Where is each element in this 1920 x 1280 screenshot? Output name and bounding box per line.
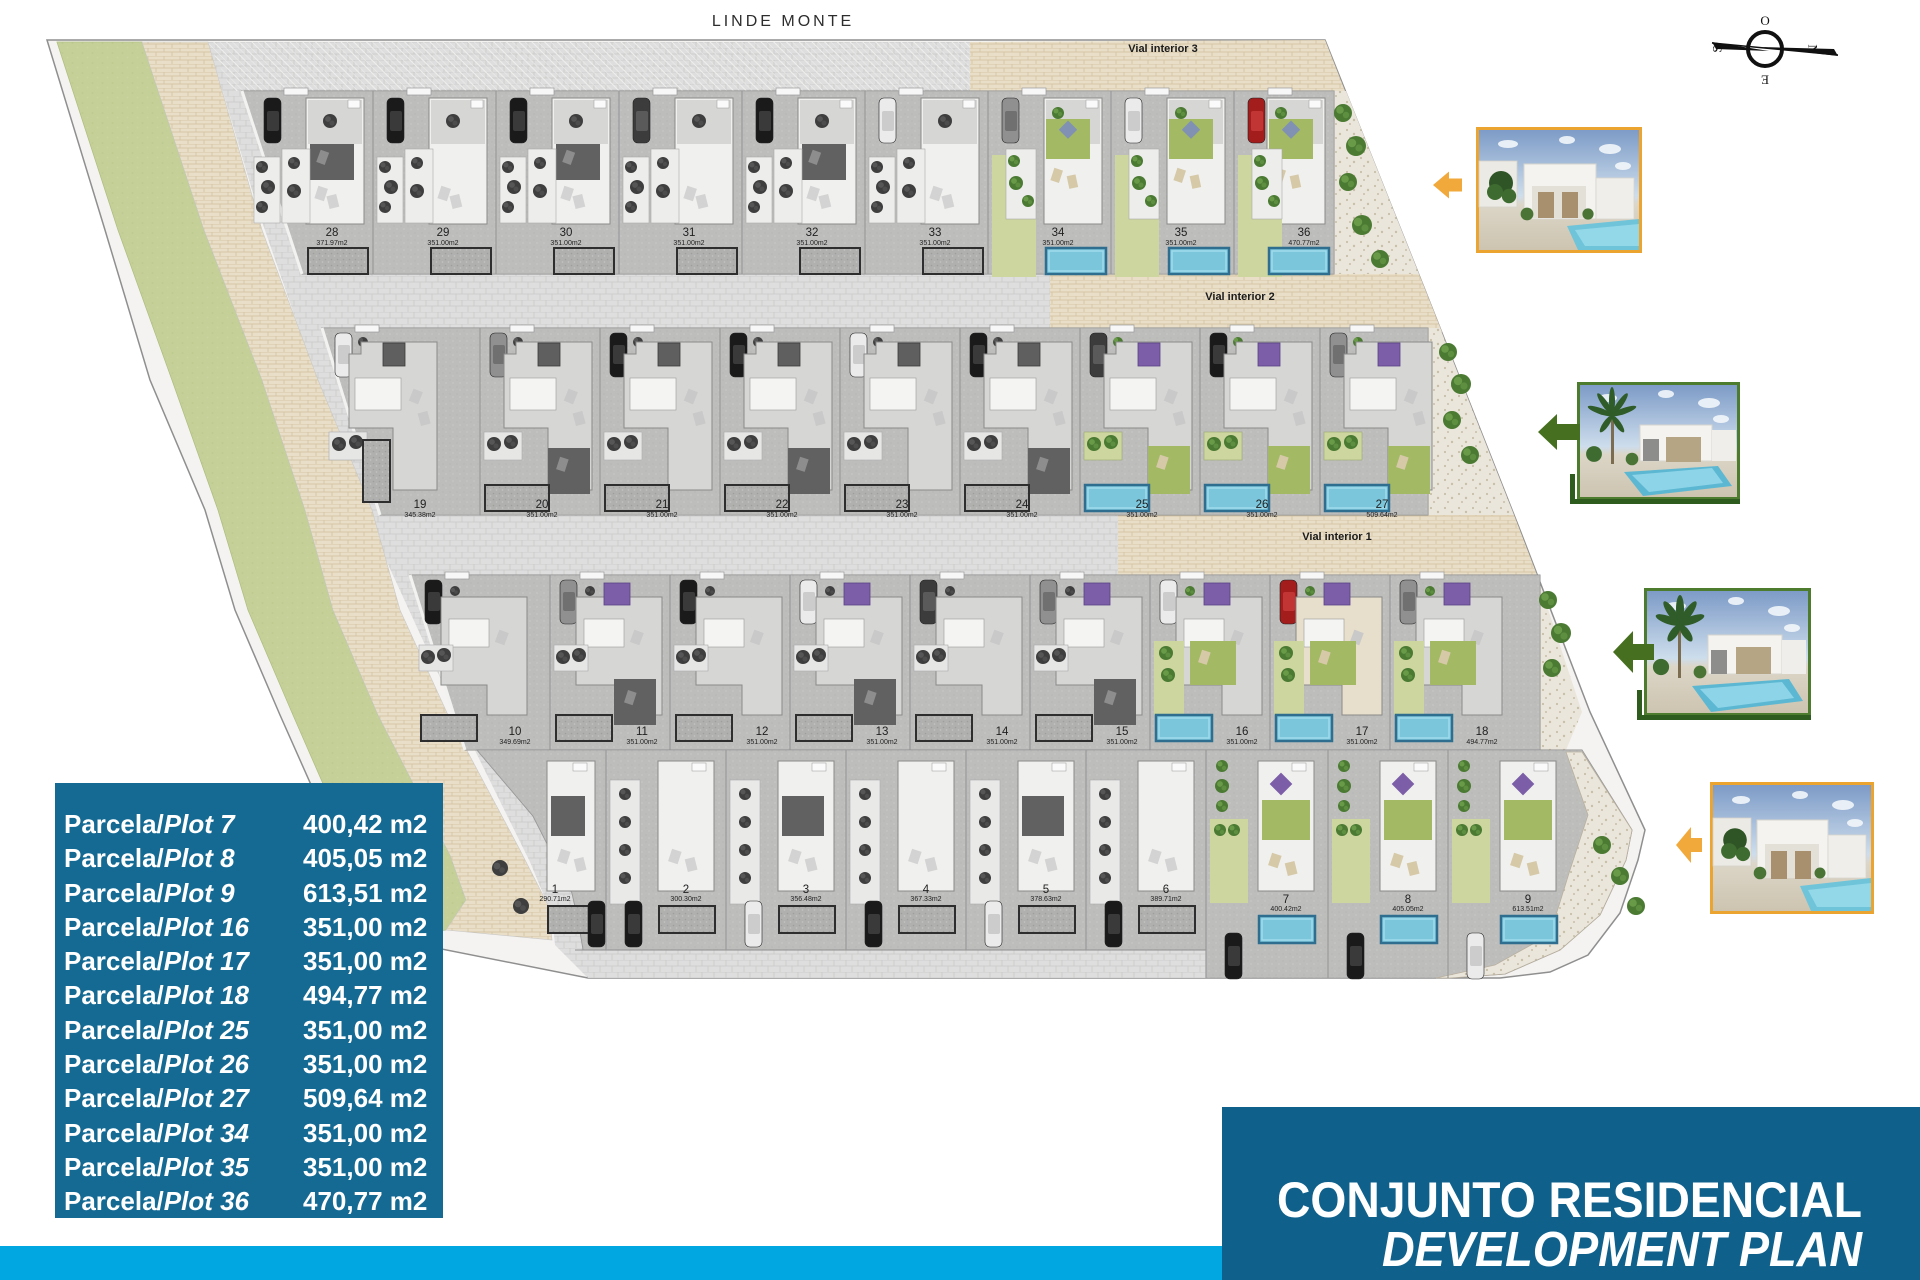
svg-text:Parcela/Plot 34: Parcela/Plot 34	[64, 1118, 250, 1148]
svg-text:Vial interior 1: Vial interior 1	[1302, 531, 1372, 543]
svg-text:S: S	[1710, 45, 1725, 52]
svg-text:509.64m2: 509.64m2	[1366, 512, 1397, 519]
svg-text:20: 20	[536, 499, 549, 511]
svg-text:29: 29	[437, 227, 450, 239]
svg-text:26: 26	[1256, 499, 1269, 511]
svg-text:351,00 m2: 351,00 m2	[303, 1015, 427, 1045]
svg-text:351.00m2: 351.00m2	[1246, 512, 1277, 519]
svg-text:Parcela/Plot 26: Parcela/Plot 26	[64, 1049, 250, 1079]
svg-text:CONJUNTO RESIDENCIAL: CONJUNTO RESIDENCIAL	[1277, 1172, 1862, 1228]
svg-text:Vial interior 2: Vial interior 2	[1205, 291, 1275, 303]
svg-text:367.33m2: 367.33m2	[910, 896, 941, 903]
svg-text:17: 17	[1356, 726, 1369, 738]
svg-text:E: E	[1761, 73, 1769, 88]
svg-text:351.00m2: 351.00m2	[1346, 739, 1377, 746]
svg-text:24: 24	[1016, 499, 1029, 511]
svg-text:23: 23	[896, 499, 909, 511]
svg-text:Parcela/Plot 27: Parcela/Plot 27	[64, 1083, 251, 1113]
svg-text:351,00 m2: 351,00 m2	[303, 912, 427, 942]
svg-text:351.00m2: 351.00m2	[427, 240, 458, 247]
svg-text:351.00m2: 351.00m2	[1165, 240, 1196, 247]
svg-text:Parcela/Plot 35: Parcela/Plot 35	[64, 1152, 250, 1182]
svg-text:351.00m2: 351.00m2	[1006, 512, 1037, 519]
svg-text:2: 2	[683, 884, 689, 896]
svg-text:290.71m2: 290.71m2	[539, 896, 570, 903]
svg-text:351.00m2: 351.00m2	[919, 240, 950, 247]
svg-text:405.05m2: 405.05m2	[1392, 906, 1423, 913]
svg-text:7: 7	[1283, 894, 1289, 906]
svg-text:351,00 m2: 351,00 m2	[303, 1049, 427, 1079]
svg-text:351.00m2: 351.00m2	[626, 739, 657, 746]
svg-text:32: 32	[806, 227, 819, 239]
svg-text:351.00m2: 351.00m2	[550, 240, 581, 247]
svg-text:13: 13	[876, 726, 889, 738]
svg-text:35: 35	[1175, 227, 1188, 239]
svg-text:470.77m2: 470.77m2	[1288, 240, 1319, 247]
svg-text:613.51m2: 613.51m2	[1512, 906, 1543, 913]
svg-text:389.71m2: 389.71m2	[1150, 896, 1181, 903]
svg-text:494.77m2: 494.77m2	[1466, 739, 1497, 746]
svg-text:351.00m2: 351.00m2	[1226, 739, 1257, 746]
svg-text:509,64 m2: 509,64 m2	[303, 1083, 427, 1113]
svg-text:28: 28	[326, 227, 339, 239]
svg-text:Parcela/Plot 16: Parcela/Plot 16	[64, 912, 250, 942]
svg-text:33: 33	[929, 227, 942, 239]
svg-text:351.00m2: 351.00m2	[766, 512, 797, 519]
svg-text:351.00m2: 351.00m2	[673, 240, 704, 247]
svg-text:351,00 m2: 351,00 m2	[303, 1118, 427, 1148]
svg-text:345.38m2: 345.38m2	[404, 512, 435, 519]
svg-text:36: 36	[1298, 227, 1311, 239]
svg-text:351.00m2: 351.00m2	[886, 512, 917, 519]
svg-text:351.00m2: 351.00m2	[1042, 240, 1073, 247]
svg-text:613,51 m2: 613,51 m2	[303, 878, 427, 908]
svg-text:22: 22	[776, 499, 789, 511]
svg-text:LINDE MONTE: LINDE MONTE	[712, 13, 854, 30]
svg-text:356.48m2: 356.48m2	[790, 896, 821, 903]
svg-text:21: 21	[656, 499, 669, 511]
svg-text:494,77 m2: 494,77 m2	[303, 980, 427, 1010]
svg-text:11: 11	[636, 726, 648, 738]
svg-text:371.97m2: 371.97m2	[316, 240, 347, 247]
svg-text:400,42 m2: 400,42 m2	[303, 809, 427, 839]
svg-text:15: 15	[1116, 726, 1129, 738]
svg-text:1: 1	[552, 884, 558, 896]
svg-text:Vial interior 3: Vial interior 3	[1128, 43, 1198, 55]
svg-text:349.69m2: 349.69m2	[499, 739, 530, 746]
svg-text:Parcela/Plot 36: Parcela/Plot 36	[64, 1186, 250, 1216]
svg-text:8: 8	[1405, 894, 1411, 906]
svg-text:12: 12	[756, 726, 769, 738]
svg-text:14: 14	[996, 726, 1009, 738]
svg-text:Parcela/Plot 18: Parcela/Plot 18	[64, 980, 250, 1010]
svg-text:405,05 m2: 405,05 m2	[303, 843, 427, 873]
svg-text:N: N	[1806, 44, 1821, 54]
svg-text:351.00m2: 351.00m2	[746, 739, 777, 746]
svg-text:Parcela/Plot 8: Parcela/Plot 8	[64, 843, 235, 873]
svg-text:Parcela/Plot 9: Parcela/Plot 9	[64, 878, 235, 908]
svg-text:300.30m2: 300.30m2	[670, 896, 701, 903]
svg-text:31: 31	[683, 227, 696, 239]
svg-text:Parcela/Plot 7: Parcela/Plot 7	[64, 809, 236, 839]
svg-text:DEVELOPMENT PLAN: DEVELOPMENT PLAN	[1382, 1223, 1863, 1277]
svg-text:351.00m2: 351.00m2	[986, 739, 1017, 746]
svg-text:6: 6	[1163, 884, 1169, 896]
svg-text:19: 19	[414, 499, 427, 511]
svg-text:5: 5	[1043, 884, 1049, 896]
svg-text:18: 18	[1476, 726, 1489, 738]
svg-text:351.00m2: 351.00m2	[526, 512, 557, 519]
svg-text:O: O	[1760, 13, 1769, 28]
svg-text:Parcela/Plot 17: Parcela/Plot 17	[64, 946, 251, 976]
svg-text:4: 4	[923, 884, 930, 896]
svg-text:16: 16	[1236, 726, 1249, 738]
svg-text:10: 10	[509, 726, 522, 738]
svg-text:351.00m2: 351.00m2	[1126, 512, 1157, 519]
svg-text:3: 3	[803, 884, 809, 896]
svg-text:351.00m2: 351.00m2	[866, 739, 897, 746]
svg-text:9: 9	[1525, 894, 1531, 906]
svg-text:351,00 m2: 351,00 m2	[303, 946, 427, 976]
svg-text:351.00m2: 351.00m2	[1106, 739, 1137, 746]
svg-text:400.42m2: 400.42m2	[1270, 906, 1301, 913]
svg-text:351.00m2: 351.00m2	[796, 240, 827, 247]
svg-text:25: 25	[1136, 499, 1149, 511]
svg-text:27: 27	[1376, 499, 1389, 511]
svg-text:378.63m2: 378.63m2	[1030, 896, 1061, 903]
svg-text:Parcela/Plot 25: Parcela/Plot 25	[64, 1015, 250, 1045]
svg-text:470,77 m2: 470,77 m2	[303, 1186, 427, 1216]
svg-text:351,00 m2: 351,00 m2	[303, 1152, 427, 1182]
svg-text:34: 34	[1052, 227, 1065, 239]
svg-text:30: 30	[560, 227, 573, 239]
svg-text:351.00m2: 351.00m2	[646, 512, 677, 519]
